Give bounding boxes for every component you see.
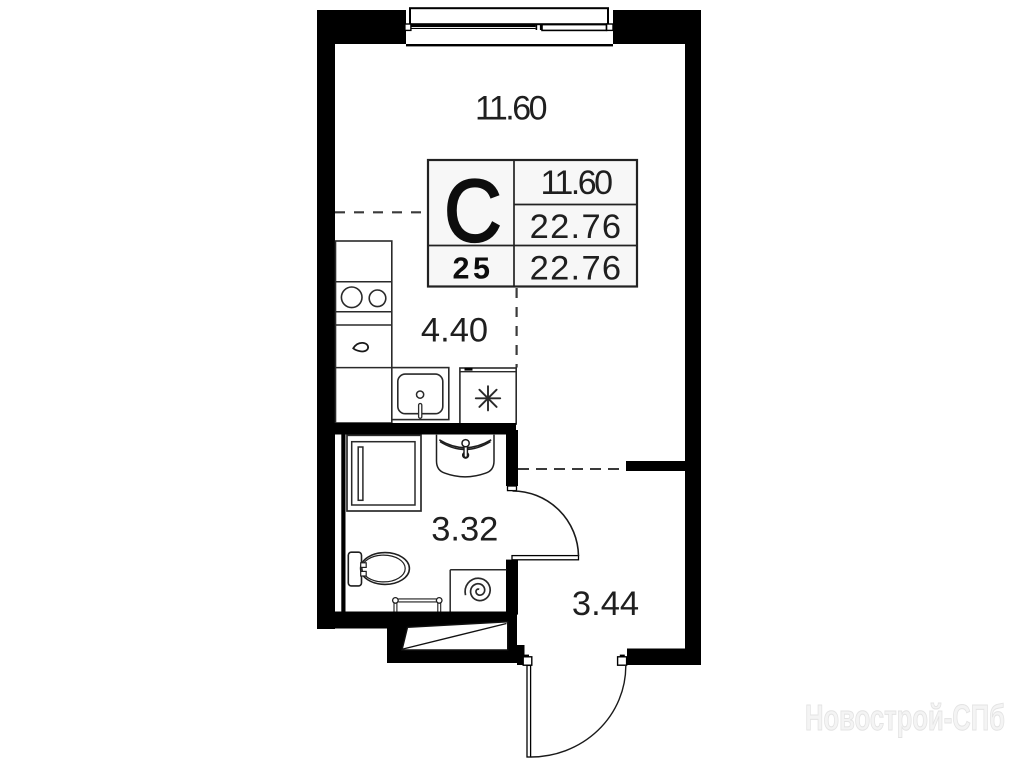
- svg-text:11.60: 11.60: [475, 90, 547, 128]
- svg-text:С: С: [444, 161, 502, 260]
- svg-text:22.76: 22.76: [530, 208, 623, 246]
- svg-text:Новострой-СПб: Новострой-СПб: [805, 697, 1005, 738]
- svg-text:22.76: 22.76: [530, 250, 623, 288]
- svg-text:3.32: 3.32: [431, 511, 498, 549]
- svg-text:25: 25: [453, 252, 494, 286]
- svg-text:11.60: 11.60: [540, 164, 612, 202]
- svg-text:4.40: 4.40: [421, 312, 488, 350]
- svg-text:3.44: 3.44: [572, 585, 639, 623]
